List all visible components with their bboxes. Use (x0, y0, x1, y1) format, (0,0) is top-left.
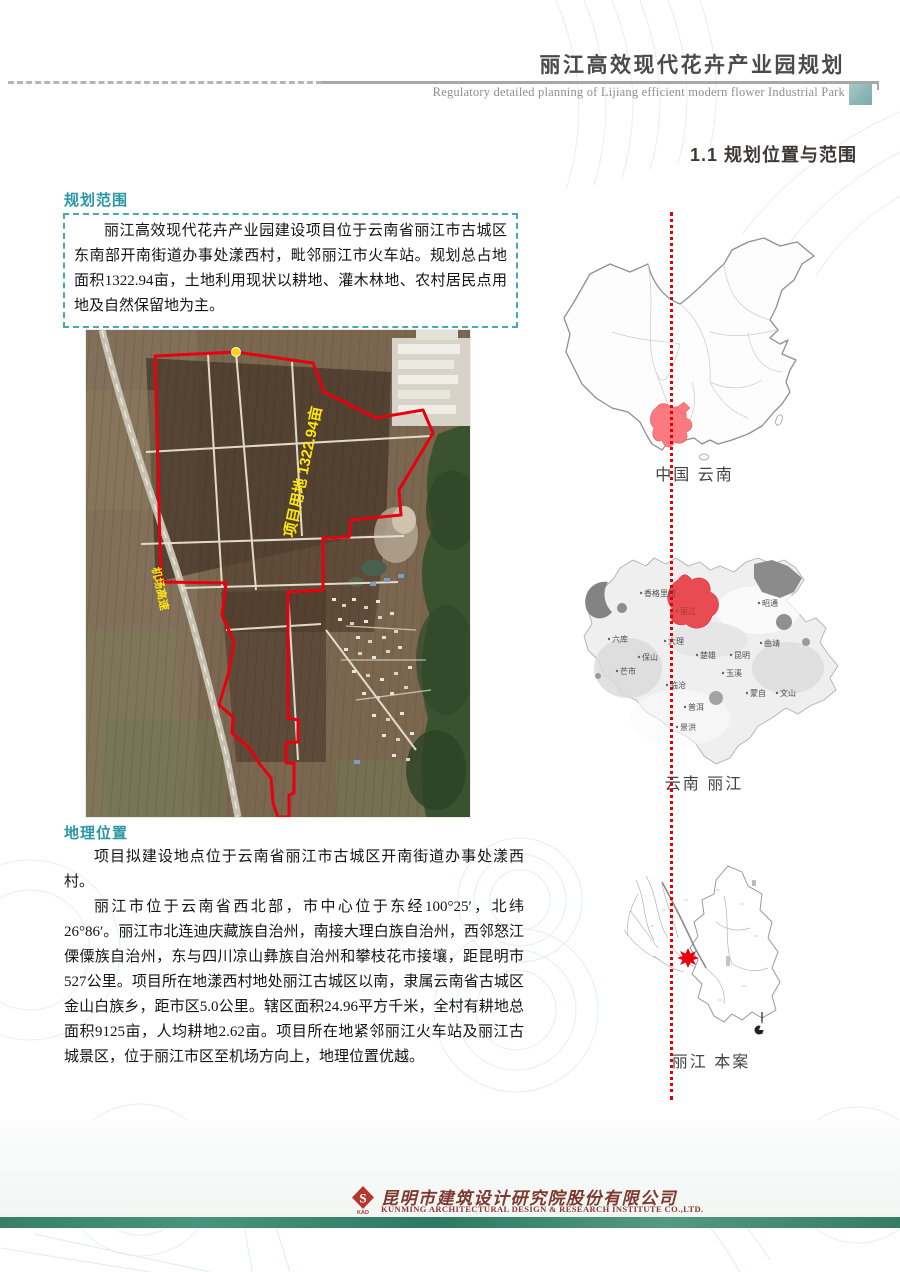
header-rule-tick (877, 81, 879, 90)
yunnan-map-caption: 云南 丽江 (558, 770, 850, 794)
geo-location-label: 地理位置 (64, 822, 128, 843)
city-label: 蒙自 (750, 688, 766, 698)
yunnan-map: 香格里拉 昭通 丽江 六库 大理 曲靖 保山 楚雄 昆明 芒市 玉溪 临沧 蒙自… (558, 548, 850, 775)
satellite-map-graphic: 项目用地 1322.94亩 机场高速 (86, 330, 470, 817)
city-label: 普洱 (688, 702, 704, 712)
taiwan-island (774, 414, 783, 426)
page-title-cn: 丽江高效现代花卉产业园规划 (540, 49, 846, 79)
city-label: 丽江 (680, 607, 696, 616)
geo-location-text: 项目拟建设地点位于云南省丽江市古城区开南街道办事处漾西村。 丽江市位于云南省西北… (64, 845, 524, 1070)
lijiang-map-caption: 丽江 本案 (566, 1048, 856, 1072)
city-label: 芒市 (620, 666, 636, 676)
satellite-site-map: 项目用地 1322.94亩 机场高速 (86, 330, 470, 817)
city-label: 昆明 (734, 651, 750, 660)
teal-corner-square (849, 84, 872, 105)
geo-paragraph-1: 项目拟建设地点位于云南省丽江市古城区开南街道办事处漾西村。 (64, 845, 524, 895)
geo-paragraph-2: 丽江市位于云南省西北部，市中心位于东经100°25′，北纬26°86′。丽江市北… (64, 895, 524, 1070)
city-label: 景洪 (680, 722, 696, 732)
city-label: 文山 (780, 688, 796, 698)
city-label: 玉溪 (726, 668, 742, 678)
hainan-island (700, 454, 709, 460)
footer-teal-bar (0, 1217, 900, 1228)
city-label: 曲靖 (764, 638, 780, 648)
header-rule-dashed (8, 81, 322, 84)
planning-scope-text: 丽江高效现代花卉产业园建设项目位于云南省丽江市古城区东南部开南街道办事处漾西村，… (74, 219, 507, 319)
city-label: 楚雄 (700, 650, 716, 660)
city-label: 六库 (612, 634, 628, 644)
lijiang-map (566, 860, 856, 1053)
section-title: 1.1 规划位置与范围 (690, 141, 857, 167)
svg-text:S: S (359, 1191, 366, 1206)
document-page: 丽江高效现代花卉产业园规划 Regulatory detailed planni… (0, 0, 900, 1272)
header-rule-solid (322, 81, 878, 84)
kad-logo: S KAD (350, 1185, 376, 1220)
planning-scope-box: 丽江高效现代花卉产业园建设项目位于云南省丽江市古城区东南部开南街道办事处漾西村，… (63, 213, 518, 328)
china-map-caption: 中国 云南 (552, 461, 837, 485)
page-title-en: Regulatory detailed planning of Lijiang … (433, 85, 845, 100)
china-map (552, 212, 837, 467)
company-name-en: KUNMING ARCHITECTURAL DESIGN & RESEARCH … (381, 1204, 704, 1214)
train-station-complex (392, 330, 470, 426)
alignment-dotted-line (670, 212, 673, 1100)
boundary-start-dot (232, 348, 241, 357)
city-label: 昭通 (762, 598, 778, 608)
planning-scope-label: 规划范围 (64, 189, 128, 210)
city-label: 保山 (642, 652, 658, 662)
kad-logo-text: KAD (357, 1210, 369, 1215)
